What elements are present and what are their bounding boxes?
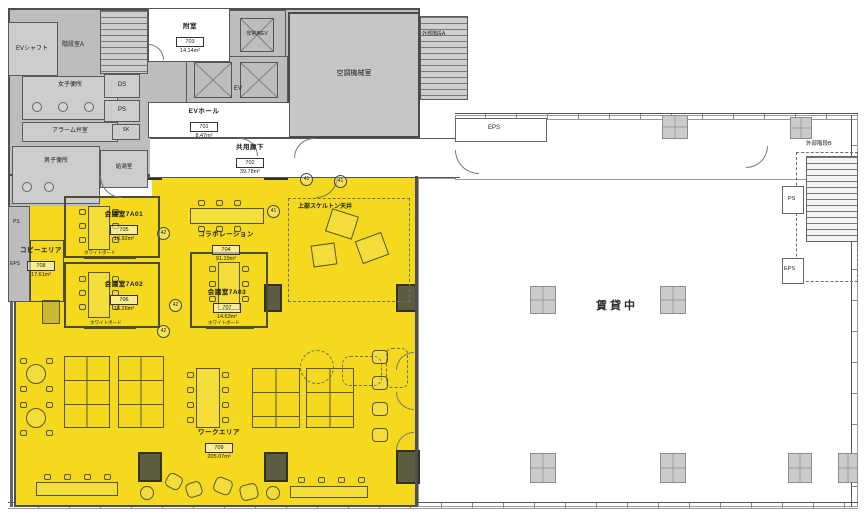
column bbox=[660, 453, 686, 483]
desk-cluster bbox=[64, 356, 110, 428]
room-number: 706 bbox=[110, 295, 137, 305]
room-number: 701 bbox=[190, 122, 217, 132]
skeleton-ceiling-label: 上部スケルトン天井 bbox=[298, 204, 352, 211]
keynote-41: 41 bbox=[334, 175, 347, 188]
column bbox=[788, 453, 812, 483]
round-table bbox=[26, 408, 46, 428]
room-area: 205.07m² bbox=[182, 454, 256, 460]
room-number: 703 bbox=[176, 37, 203, 47]
room-area: 16.26m² bbox=[92, 306, 156, 312]
armchair bbox=[372, 376, 388, 390]
room-number: 702 bbox=[236, 158, 263, 168]
ps-label: PS bbox=[104, 107, 140, 114]
chair bbox=[216, 200, 223, 206]
armchair bbox=[372, 428, 388, 442]
stairwell-a-label: 階段室A bbox=[62, 42, 84, 49]
room-name: ワークエリア bbox=[182, 426, 256, 436]
chair bbox=[187, 387, 194, 393]
stool bbox=[64, 474, 71, 480]
ps-shaft-left-label: PS bbox=[13, 220, 20, 226]
chair bbox=[46, 358, 53, 364]
hvac-label: 空調機械室 bbox=[288, 70, 420, 78]
room-stamp-707: 会議室7A03 707 14.63m² bbox=[192, 286, 262, 320]
room-name: 共用廊下 bbox=[212, 141, 288, 151]
chair bbox=[222, 372, 229, 378]
room-number: 704 bbox=[212, 245, 239, 255]
stool bbox=[358, 477, 365, 483]
room-number: 708 bbox=[27, 261, 54, 271]
chair bbox=[46, 386, 53, 392]
armchair bbox=[372, 350, 388, 364]
round-table bbox=[26, 364, 46, 384]
kitchenette-label: 給湯室 bbox=[100, 164, 148, 170]
ds-label: DS bbox=[104, 82, 140, 89]
toilet-fixture bbox=[58, 102, 68, 112]
room-area: 39.78m² bbox=[212, 169, 288, 175]
room-name: コラボレーション bbox=[184, 228, 268, 238]
whiteboard bbox=[84, 257, 136, 259]
room-name: コピーエリア bbox=[12, 244, 70, 254]
room-stamp-706: 会議室7A02 706 16.26m² bbox=[92, 278, 156, 312]
room-number: 705 bbox=[110, 225, 137, 235]
chair bbox=[46, 402, 53, 408]
room-stamp-704: コラボレーション 704 91.19m² bbox=[184, 228, 268, 262]
whiteboard-label: ホワイトボード bbox=[90, 320, 122, 325]
keynote-42: 42 bbox=[169, 299, 182, 312]
room-area: 16.92m² bbox=[92, 236, 156, 242]
plant bbox=[266, 486, 280, 500]
room-number: 707 bbox=[213, 303, 240, 313]
armchair bbox=[372, 402, 388, 416]
room-stamp-703: 附室 703 14.14m² bbox=[152, 20, 228, 54]
keynote-42: 42 bbox=[157, 325, 170, 338]
ext-stair-a-label: 外部階段A bbox=[422, 32, 445, 38]
left-wall-lower bbox=[10, 300, 13, 507]
ext-stair-a bbox=[420, 16, 468, 100]
stool bbox=[318, 477, 325, 483]
collab-table bbox=[190, 208, 264, 224]
column bbox=[662, 115, 688, 139]
ext-stair-b-label: 外部階段B bbox=[806, 141, 832, 147]
room-name: 会議室7A01 bbox=[92, 208, 156, 218]
toilet-fixture bbox=[32, 102, 42, 112]
whiteboard bbox=[84, 327, 136, 329]
long-table bbox=[196, 368, 220, 428]
room-number: 709 bbox=[205, 443, 232, 453]
toilet-fixture bbox=[22, 182, 32, 192]
leased-label: 賃貸中 bbox=[572, 300, 662, 313]
chair bbox=[20, 430, 27, 436]
door-arc bbox=[100, 176, 122, 198]
room-stamp-705: 会議室7A01 705 16.92m² bbox=[92, 208, 156, 242]
bench bbox=[290, 486, 368, 498]
column bbox=[530, 453, 556, 483]
stool bbox=[298, 477, 305, 483]
room-stamp-702: 共用廊下 702 39.78m² bbox=[212, 141, 288, 175]
chair bbox=[234, 200, 241, 206]
chair bbox=[222, 402, 229, 408]
room-name: 会議室7A03 bbox=[192, 286, 262, 296]
skeleton-ceiling-zone bbox=[288, 198, 410, 302]
chair bbox=[198, 200, 205, 206]
column bbox=[264, 452, 288, 482]
stool bbox=[338, 477, 345, 483]
chair bbox=[222, 387, 229, 393]
stool bbox=[84, 474, 91, 480]
plant bbox=[140, 486, 154, 500]
room-area: 8.47m² bbox=[166, 133, 242, 139]
desk-cluster bbox=[118, 356, 164, 428]
keynote-41: 41 bbox=[267, 205, 280, 218]
room-name: EVホール bbox=[166, 105, 242, 115]
mens-toilet-label: 男子便所 bbox=[12, 158, 100, 165]
emergency-ev-label: 非常用EV bbox=[234, 32, 280, 38]
whiteboard bbox=[206, 327, 254, 329]
stool bbox=[104, 474, 111, 480]
room-name: 附室 bbox=[152, 20, 228, 30]
desk-cluster bbox=[252, 368, 300, 428]
eps-shaft-right-label: EPS bbox=[784, 266, 795, 272]
chair bbox=[222, 417, 229, 423]
chair bbox=[20, 402, 27, 408]
keynote-41: 41 bbox=[300, 173, 313, 186]
whiteboard-label: ホワイトボード bbox=[208, 320, 240, 325]
whiteboard-label: ホワイトボード bbox=[84, 250, 116, 255]
column bbox=[660, 286, 686, 314]
ps-shaft-right-label: PS bbox=[788, 196, 795, 202]
room-stamp-701: EVホール 701 8.47m² bbox=[166, 105, 242, 139]
room-stamp-709: ワークエリア 709 205.07m² bbox=[182, 426, 256, 460]
room-area: 91.19m² bbox=[184, 256, 268, 262]
chair bbox=[187, 417, 194, 423]
tenant-east-wall bbox=[415, 176, 418, 507]
desk-cluster bbox=[306, 368, 354, 428]
room-stamp-708: コピーエリア 708 17.61m² bbox=[12, 244, 70, 278]
copier bbox=[42, 300, 60, 324]
toilet-fixture bbox=[84, 102, 94, 112]
keynote-42: 42 bbox=[157, 227, 170, 240]
room-area: 14.14m² bbox=[152, 48, 228, 54]
column bbox=[530, 286, 556, 314]
column bbox=[138, 452, 162, 482]
floor-plan: 賃貸中 外部階段B PS EPS ホワイトボード ホワイトボード ホワイトボード… bbox=[0, 0, 864, 528]
ev-shaft-label: EVシャフト bbox=[6, 46, 58, 53]
column bbox=[790, 117, 812, 139]
chair bbox=[20, 386, 27, 392]
room-area: 17.61m² bbox=[12, 272, 70, 278]
chair bbox=[187, 372, 194, 378]
column bbox=[838, 453, 858, 483]
ext-stair-b bbox=[806, 156, 858, 242]
room-name: 会議室7A02 bbox=[92, 278, 156, 288]
chair bbox=[20, 358, 27, 364]
eps-room-top-label: EPS bbox=[488, 125, 500, 132]
sk-label: SK bbox=[112, 128, 140, 134]
chair bbox=[46, 430, 53, 436]
bench bbox=[36, 482, 118, 496]
toilet-fixture bbox=[44, 182, 54, 192]
room-area: 14.63m² bbox=[192, 314, 262, 320]
ev-label: EV bbox=[224, 86, 252, 93]
stairwell-a bbox=[100, 10, 148, 74]
stool bbox=[44, 474, 51, 480]
chair bbox=[187, 402, 194, 408]
eps-room-top bbox=[455, 118, 547, 142]
alarm-valve-label: アラーム弁室 bbox=[22, 128, 118, 135]
